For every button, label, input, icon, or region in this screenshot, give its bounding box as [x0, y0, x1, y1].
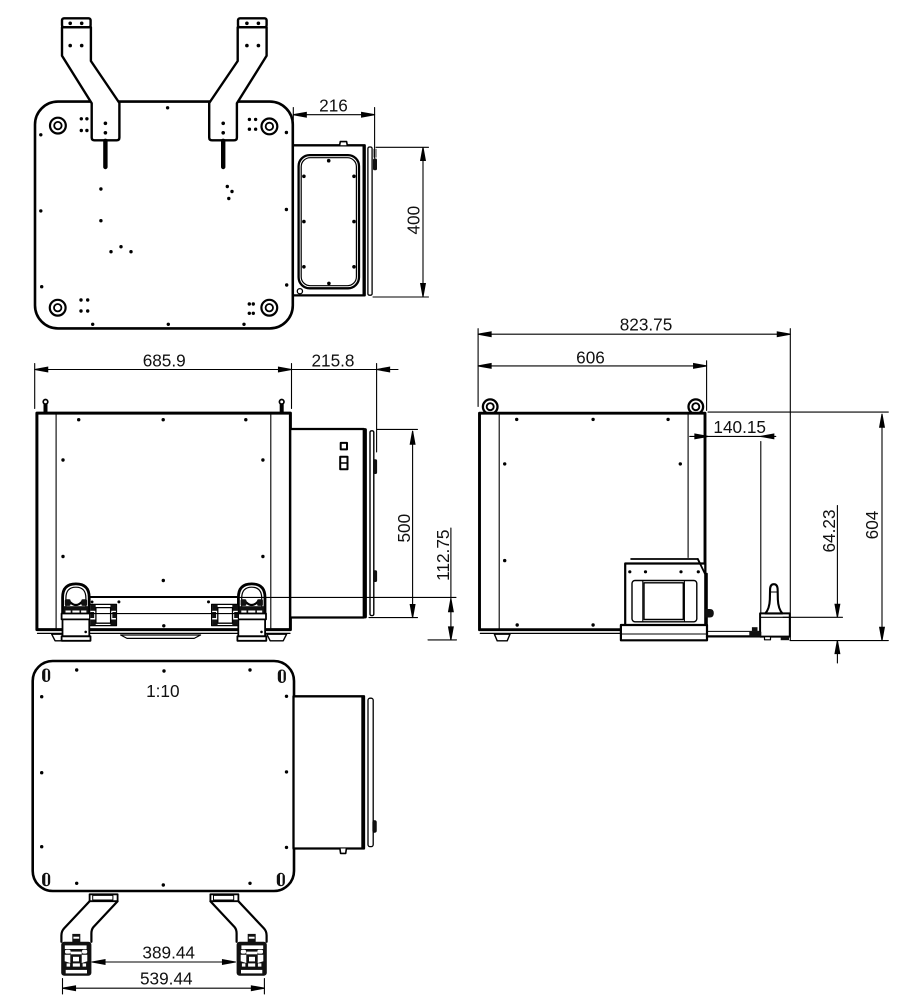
- svg-text:400: 400: [404, 206, 424, 235]
- svg-text:64.23: 64.23: [819, 509, 839, 552]
- svg-text:823.75: 823.75: [620, 314, 673, 334]
- svg-text:500: 500: [394, 514, 414, 543]
- svg-text:604: 604: [862, 510, 882, 539]
- svg-text:685.9: 685.9: [143, 351, 186, 371]
- svg-text:539.44: 539.44: [140, 969, 193, 989]
- svg-text:389.44: 389.44: [142, 943, 195, 963]
- svg-text:215.8: 215.8: [311, 351, 354, 371]
- svg-text:1:10: 1:10: [146, 681, 179, 701]
- svg-text:140.15: 140.15: [713, 417, 766, 437]
- svg-text:112.75: 112.75: [433, 530, 453, 581]
- svg-text:606: 606: [576, 348, 605, 368]
- svg-text:216: 216: [319, 96, 348, 116]
